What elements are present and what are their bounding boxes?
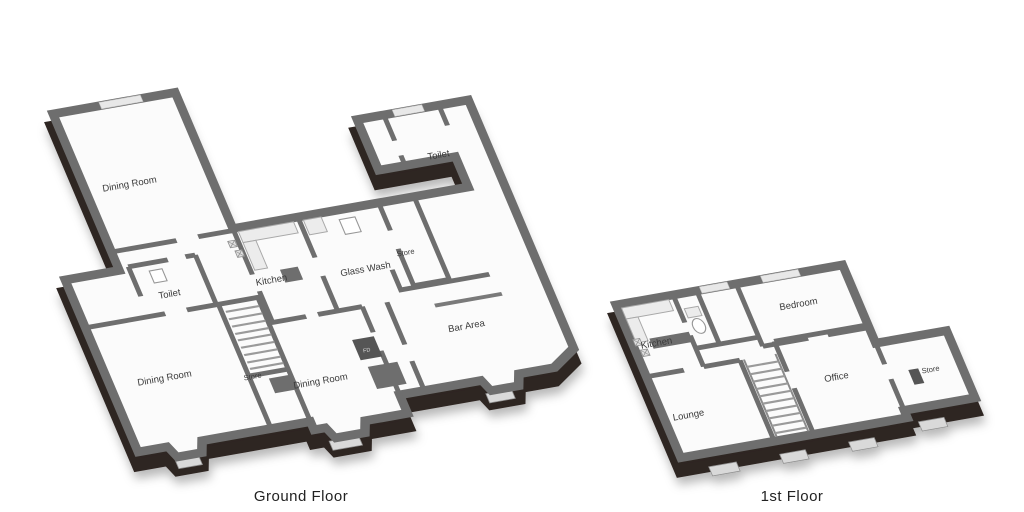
- first-floor-title: 1st Floor: [761, 488, 824, 505]
- room-label-fire-door: FD: [363, 347, 371, 354]
- floorplan-page: Dining Room Toilet Kitchen Glass Wash St…: [0, 0, 1024, 512]
- first-floor-plan: Kitchen Bedroom Office Store Lounge: [615, 249, 983, 481]
- ground-floor-title: Ground Floor: [254, 488, 348, 505]
- ground-floor-plan: Dining Room Toilet Kitchen Glass Wash St…: [0, 42, 592, 485]
- floorplan-canvas: Dining Room Toilet Kitchen Glass Wash St…: [0, 0, 1024, 512]
